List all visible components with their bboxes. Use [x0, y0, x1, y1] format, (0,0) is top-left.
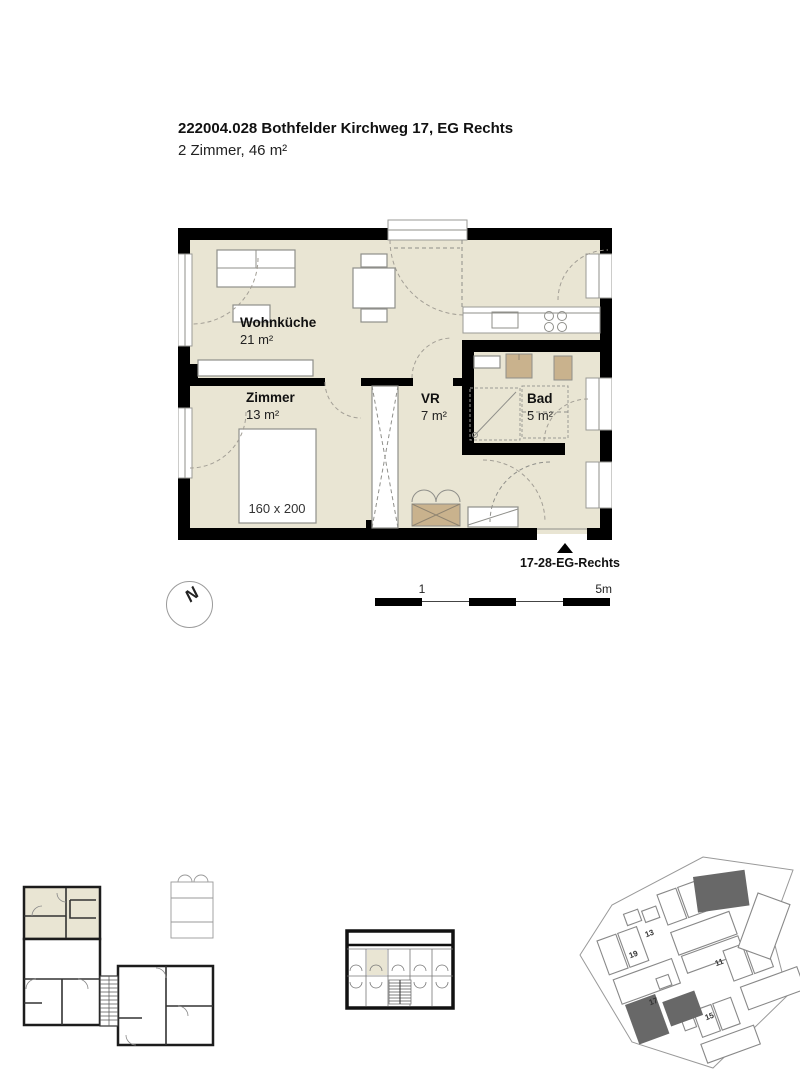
unit-marker-label: 17-28-EG-Rechts: [504, 556, 620, 570]
siteplan: 19 13 11 17 15: [575, 853, 800, 1071]
floorplan-document: 222004.028 Bothfelder Kirchweg 17, EG Re…: [0, 0, 800, 1083]
unit-location-marker-icon: [557, 543, 573, 553]
wardrobe: [372, 386, 398, 528]
room-label-bad: Bad 5 m²: [527, 390, 553, 424]
keyplan-annex-building: [171, 875, 213, 938]
scale-bar-segment: [375, 598, 422, 606]
room-name: Bad: [527, 390, 553, 407]
room-name: Wohnküche: [240, 314, 316, 331]
keyplan-stairwell: [100, 976, 118, 1026]
room-label-vr: VR 7 m²: [421, 390, 447, 424]
keyplan-drawing: [18, 858, 228, 1068]
scale-bar-segment: [469, 598, 516, 606]
room-name: Zimmer: [246, 389, 295, 406]
section-diagram: [344, 924, 456, 1014]
section-stairs: [389, 980, 411, 1004]
floorplan-svg: [178, 218, 612, 540]
north-label: N: [181, 583, 203, 606]
scale-bar: 1 5m: [375, 582, 610, 608]
section-highlight-unit: [367, 950, 387, 975]
room-name: VR: [421, 390, 447, 407]
floorplan-drawing: Wohnküche 21 m² Zimmer 13 m² VR 7 m² Bad…: [178, 218, 612, 540]
room-area: 7 m²: [421, 407, 447, 424]
north-arrow-icon: N: [166, 581, 213, 628]
scale-bar-graphic: [375, 598, 610, 606]
siteplan-svg: [575, 853, 800, 1071]
page-title: 222004.028 Bothfelder Kirchweg 17, EG Re…: [178, 120, 513, 137]
bed-size-label: 160 x 200: [227, 501, 327, 516]
room-label-zimmer: Zimmer 13 m²: [246, 389, 295, 423]
scale-bar-segment: [563, 598, 610, 606]
scale-tick-5m: 5m: [595, 582, 612, 596]
room-area: 13 m²: [246, 406, 295, 423]
scale-bar-labels: 1 5m: [375, 582, 610, 595]
page-subtitle: 2 Zimmer, 46 m²: [178, 142, 287, 159]
room-label-wohnkueche: Wohnküche 21 m²: [240, 314, 316, 348]
scale-tick-1: 1: [415, 582, 429, 596]
room-area: 21 m²: [240, 331, 316, 348]
room-area: 5 m²: [527, 407, 553, 424]
